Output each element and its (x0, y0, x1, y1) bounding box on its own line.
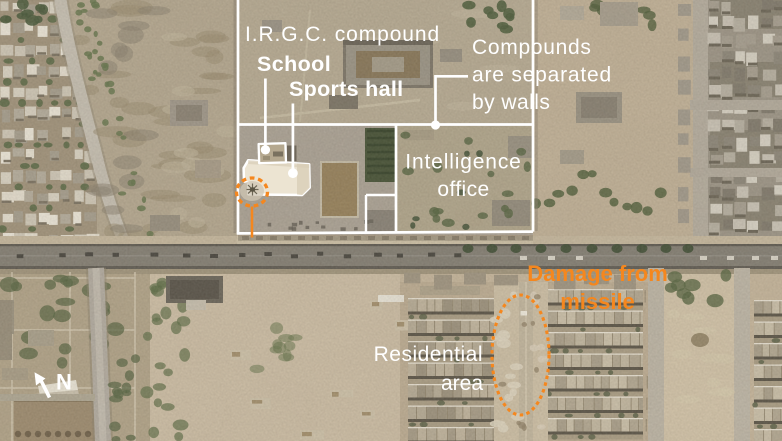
svg-text:are separated: are separated (472, 64, 612, 87)
svg-text:Damage from: Damage from (527, 261, 668, 286)
svg-text:Compounds: Compounds (472, 36, 592, 59)
svg-text:N: N (56, 370, 72, 395)
svg-text:School: School (257, 52, 331, 76)
svg-text:Residential: Residential (374, 343, 483, 366)
svg-text:missile: missile (560, 289, 635, 314)
svg-text:by walls: by walls (472, 91, 550, 114)
svg-text:I.R.G.C. compound: I.R.G.C. compound (245, 23, 440, 46)
svg-text:office: office (437, 178, 489, 201)
svg-text:Sports hall: Sports hall (289, 77, 403, 101)
svg-text:area: area (441, 372, 483, 395)
svg-text:Intelligence: Intelligence (405, 151, 521, 174)
